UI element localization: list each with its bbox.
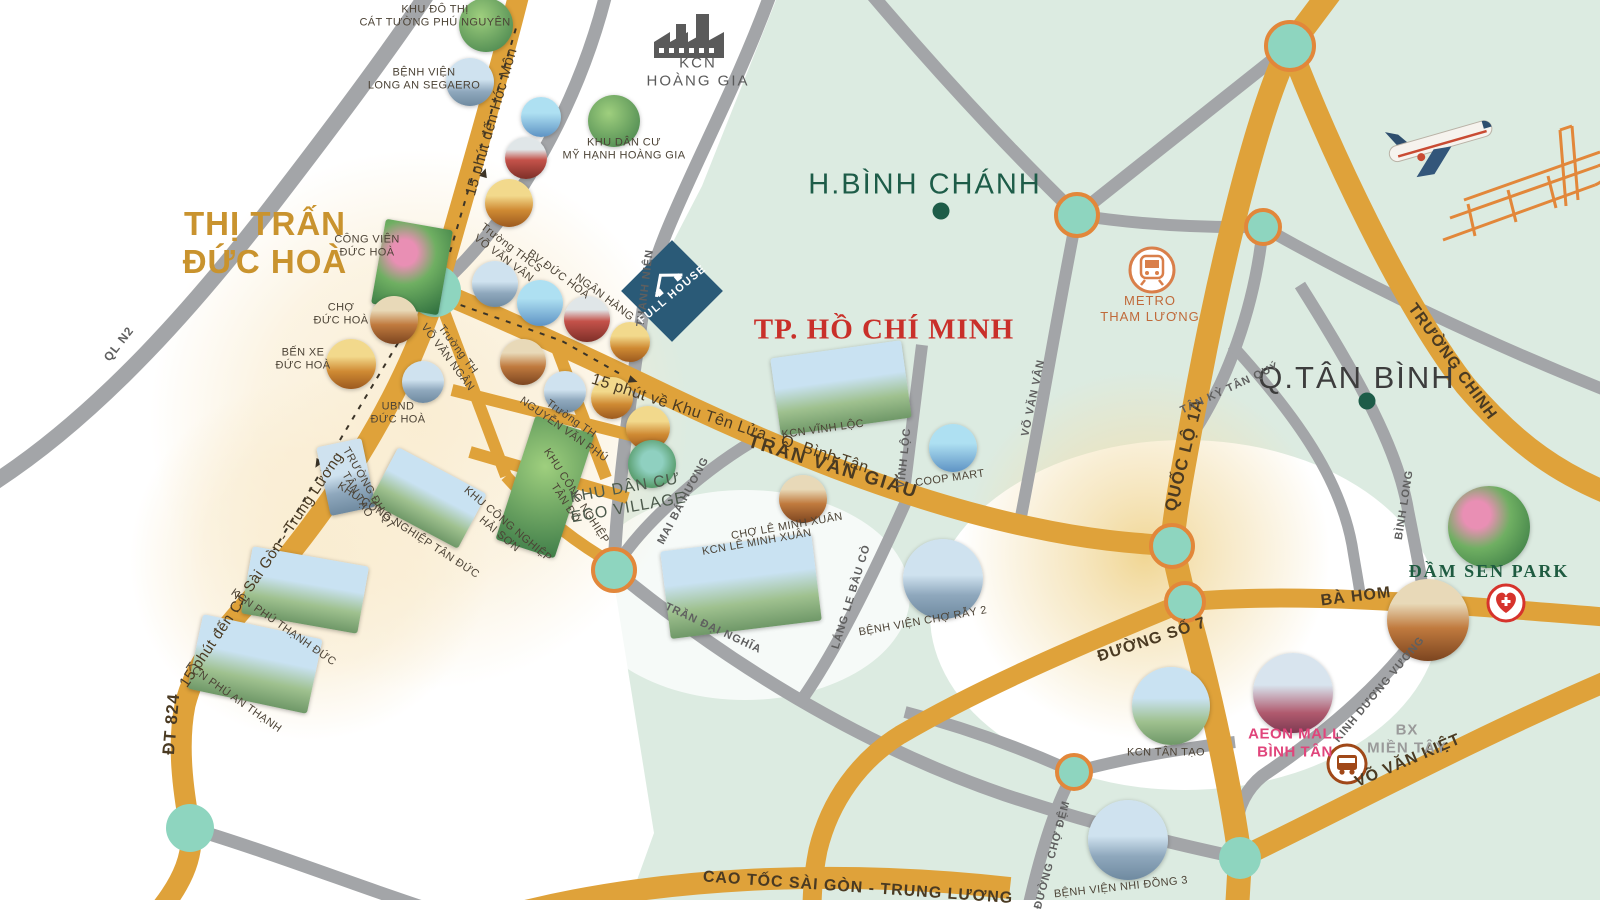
- photo-cho-duc-hoa: [370, 296, 418, 344]
- poi-label-bx-mien-tay: BX MIỀN TÂY: [1367, 722, 1447, 759]
- factory-icon: [654, 14, 724, 58]
- photo-storefront: [505, 137, 547, 179]
- h-binh-chanh-dot: [933, 203, 950, 220]
- photo-storefront: [485, 179, 533, 227]
- photo-ubnd: [402, 361, 444, 403]
- poi-label-metro-tham-luong: METRO THAM LƯƠNG: [1100, 293, 1199, 325]
- poi-label-dam-sen-park: ĐẦM SEN PARK: [1409, 561, 1570, 583]
- photo-bv-duc-hoa: [517, 280, 563, 326]
- photo-ben-xe: [326, 339, 376, 389]
- photo-bv-nhi-dong-3: [1088, 800, 1168, 880]
- poi-label-aeon-mall: AEON MALL BÌNH TÂN: [1248, 726, 1342, 763]
- photo-kcn-tan-tao: [1132, 667, 1210, 745]
- photo-market: [500, 339, 546, 385]
- poi-label-kdt-cat-tuong: KHU ĐÔ THỊ CÁT TƯỜNG PHÚ NGUYÊN: [359, 4, 510, 31]
- poi-label-kcn-hoang-gia: KCN HOÀNG GIA: [646, 55, 749, 92]
- poi-label-cong-vien: CÔNG VIÊN ĐỨC HOÀ: [334, 234, 399, 261]
- map-canvas: THỊ TRẤN ĐỨC HOÀ H.BÌNH CHÁNH TP. HỒ CHÍ…: [0, 0, 1600, 900]
- road-node: [1246, 210, 1280, 244]
- road-node: [1057, 755, 1091, 789]
- area-title-q-tan-binh: Q.TÂN BÌNH: [1258, 359, 1455, 397]
- road-sw-branch: [190, 828, 425, 900]
- road-node: [1056, 194, 1098, 236]
- photo-dam-sen: [1448, 486, 1530, 568]
- poi-label-ben-xe: BẾN XE ĐỨC HOÀ: [276, 347, 331, 374]
- road-node: [166, 804, 214, 852]
- poi-label-cho-duc-hoa: CHỢ ĐỨC HOÀ: [314, 302, 369, 329]
- area-title-tp-hcm: TP. HỒ CHÍ MINH: [754, 312, 1014, 347]
- poi-label-bv-long-an: BỆNH VIỆN LONG AN SEGAERO: [368, 67, 480, 94]
- poi-label-kcn-tan-tao: KCN TÂN TẠO: [1127, 746, 1205, 759]
- metro-icon: [1130, 248, 1174, 292]
- road-node: [1266, 22, 1314, 70]
- heart-hospital-icon: [1488, 585, 1524, 621]
- photo-coop-mart: [929, 424, 977, 472]
- photo-aeon-mall: [1253, 653, 1333, 733]
- road-node: [1151, 525, 1193, 567]
- q-tan-binh-dot: [1359, 393, 1376, 410]
- area-title-h-binh-chanh: H.BÌNH CHÁNH: [808, 167, 1041, 202]
- photo-ba-hom-market: [1387, 579, 1469, 661]
- photo-shop: [610, 322, 650, 362]
- area-title-thi-tran-duc-hoa: THỊ TRẤN ĐỨC HOÀ: [183, 205, 348, 281]
- road-node: [593, 549, 635, 591]
- poi-label-ubnd: UBND ĐỨC HOÀ: [371, 401, 426, 428]
- road-node: [1219, 837, 1261, 879]
- poi-label-kdc-my-hanh: KHU DÂN CƯ MỸ HẠNH HOÀNG GIA: [563, 137, 686, 164]
- photo-building: [521, 97, 561, 137]
